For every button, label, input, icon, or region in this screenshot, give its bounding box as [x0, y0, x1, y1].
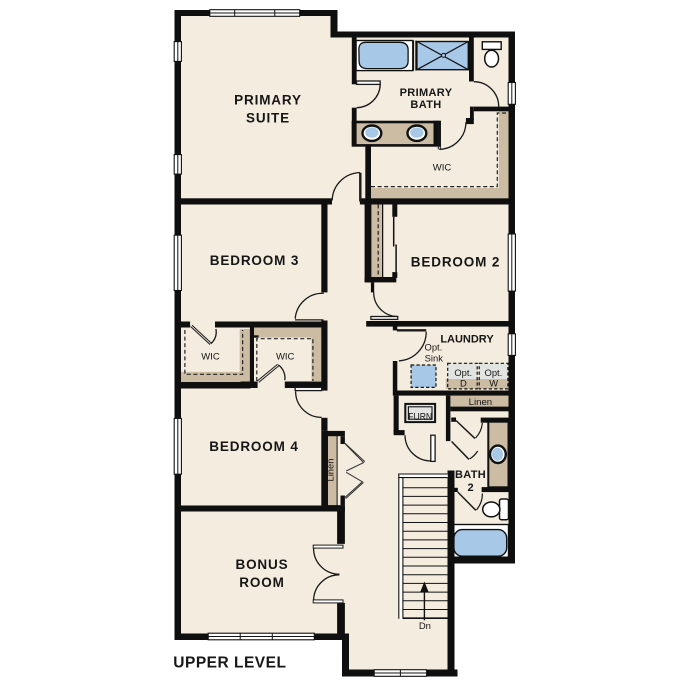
svg-text:FURN: FURN — [408, 412, 432, 423]
svg-text:W: W — [489, 377, 498, 388]
svg-text:SUITE: SUITE — [246, 110, 290, 125]
svg-text:BEDROOM 4: BEDROOM 4 — [209, 439, 298, 454]
svg-text:Linen: Linen — [325, 459, 336, 482]
svg-text:WIC: WIC — [433, 163, 452, 174]
svg-text:BEDROOM 2: BEDROOM 2 — [411, 255, 500, 270]
svg-text:PRIMARY: PRIMARY — [400, 87, 453, 99]
svg-text:PRIMARY: PRIMARY — [234, 93, 302, 108]
svg-text:BEDROOM 3: BEDROOM 3 — [210, 253, 299, 268]
svg-text:UPPER LEVEL: UPPER LEVEL — [173, 655, 286, 672]
svg-text:Linen: Linen — [469, 397, 492, 408]
svg-text:WIC: WIC — [201, 352, 220, 363]
svg-text:Dn: Dn — [419, 621, 431, 632]
svg-text:WIC: WIC — [276, 352, 295, 363]
svg-text:2: 2 — [467, 482, 473, 494]
svg-text:Opt.: Opt. — [454, 367, 472, 378]
svg-text:BATH: BATH — [410, 99, 441, 111]
svg-text:ROOM: ROOM — [239, 575, 284, 590]
svg-text:LAUNDRY: LAUNDRY — [440, 334, 494, 346]
svg-text:Opt.: Opt. — [485, 367, 503, 378]
svg-text:Opt.: Opt. — [425, 341, 443, 352]
svg-text:BONUS: BONUS — [235, 557, 288, 572]
svg-text:D: D — [460, 377, 467, 388]
svg-text:BATH: BATH — [455, 469, 486, 481]
svg-text:Sink: Sink — [425, 352, 444, 363]
